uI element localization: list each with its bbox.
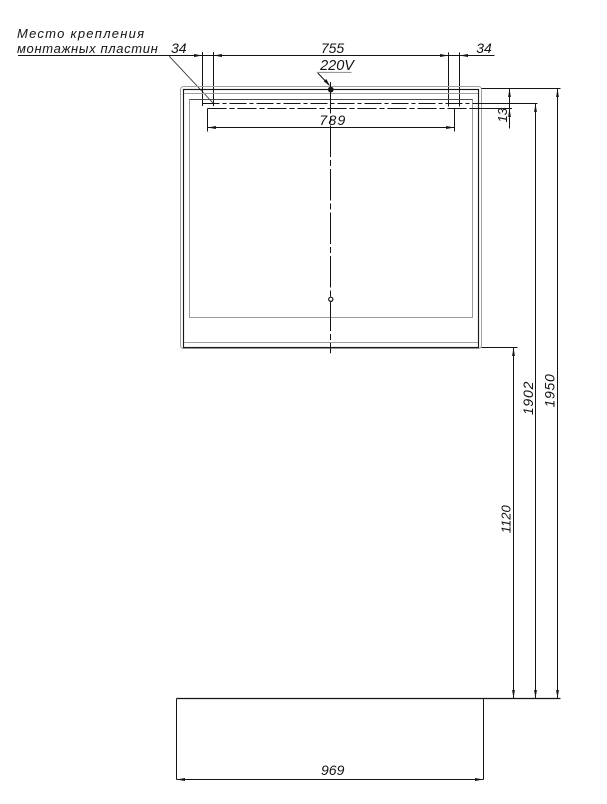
svg-text:монтажных пластин: монтажных пластин — [17, 41, 158, 56]
svg-text:789: 789 — [319, 112, 346, 128]
svg-text:1950: 1950 — [542, 374, 558, 408]
svg-text:755: 755 — [321, 40, 345, 56]
svg-text:13: 13 — [495, 107, 510, 122]
svg-text:Место крепления: Место крепления — [17, 26, 145, 41]
svg-text:220V: 220V — [319, 58, 355, 74]
svg-text:1902: 1902 — [520, 381, 536, 415]
svg-text:1120: 1120 — [499, 505, 514, 534]
svg-text:969: 969 — [321, 762, 345, 778]
svg-text:34: 34 — [476, 40, 492, 56]
svg-text:34: 34 — [171, 40, 187, 56]
